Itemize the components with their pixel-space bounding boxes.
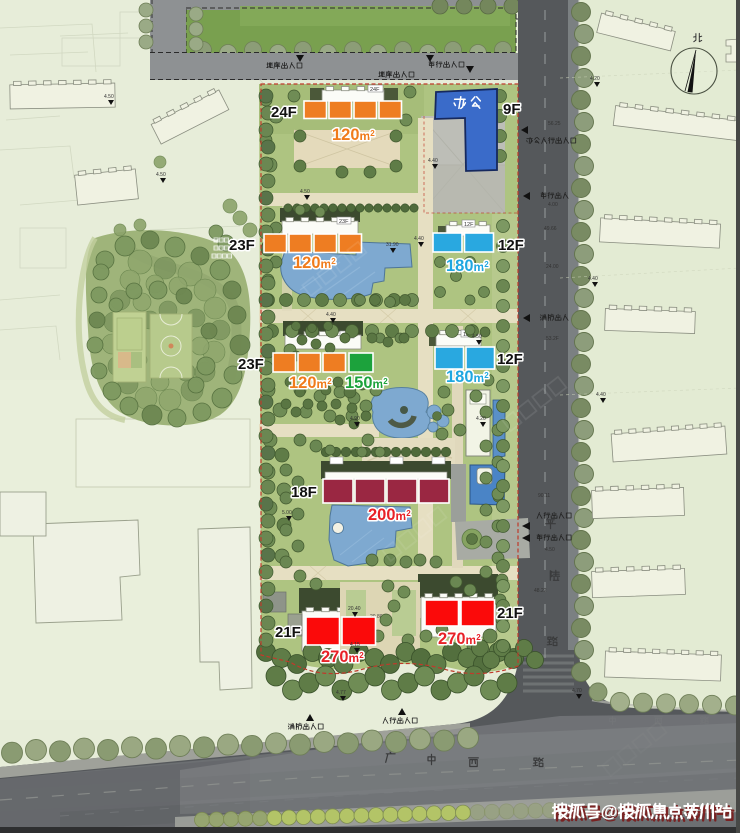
svg-text:150m2: 150m2 [345,374,388,392]
svg-text:9F: 9F [503,101,521,118]
svg-text:56.25: 56.25 [548,121,561,127]
svg-text:4.50: 4.50 [104,94,114,100]
svg-text:270m2: 270m2 [438,630,481,648]
svg-text:4.20: 4.20 [476,416,486,422]
svg-text:4.40: 4.40 [414,236,424,242]
svg-text:18F: 18F [291,484,317,501]
svg-text:120m2: 120m2 [289,374,332,392]
svg-text:23F: 23F [238,356,264,373]
svg-text:4.00: 4.00 [548,202,558,208]
svg-text:12F: 12F [498,237,524,254]
svg-text:24F: 24F [370,87,380,93]
svg-text:@: @ [601,801,618,821]
svg-text:53.2F: 53.2F [546,336,559,342]
svg-text:24.00: 24.00 [546,264,559,270]
svg-text:12F: 12F [464,222,474,228]
svg-text:49.66: 49.66 [544,226,557,232]
svg-text:31.90: 31.90 [386,242,399,248]
svg-text:24F: 24F [271,104,297,121]
svg-text:4.15: 4.15 [350,642,360,648]
svg-text:120m2: 120m2 [293,254,336,272]
svg-text:4.50: 4.50 [545,547,555,553]
svg-text:21F: 21F [275,624,301,641]
svg-text:4.50: 4.50 [472,334,482,340]
svg-text:180m2: 180m2 [446,368,489,386]
svg-text:120m2: 120m2 [332,126,375,144]
svg-text:23F: 23F [229,237,255,254]
svg-text:4.90: 4.90 [350,416,360,422]
svg-text:12F: 12F [497,351,523,368]
svg-text:23F: 23F [339,219,349,225]
svg-text:21F: 21F [497,605,523,622]
svg-text:4.20: 4.20 [590,76,600,82]
svg-text:4.40: 4.40 [428,158,438,164]
svg-text:20.40: 20.40 [348,606,361,612]
svg-text:180m2: 180m2 [446,257,489,275]
svg-text:4.50: 4.50 [300,189,310,195]
svg-text:90.11: 90.11 [538,493,550,499]
svg-text:4.50: 4.50 [156,172,166,178]
svg-text:4.40: 4.40 [588,276,598,282]
svg-text:4.77: 4.77 [336,690,346,696]
svg-text:200m2: 200m2 [368,506,411,524]
svg-text:5.00: 5.00 [282,510,292,516]
svg-text:4.70: 4.70 [572,688,582,694]
svg-text:4.40: 4.40 [326,312,336,318]
svg-text:4.40: 4.40 [596,392,606,398]
svg-text:48.22: 48.22 [534,588,547,594]
